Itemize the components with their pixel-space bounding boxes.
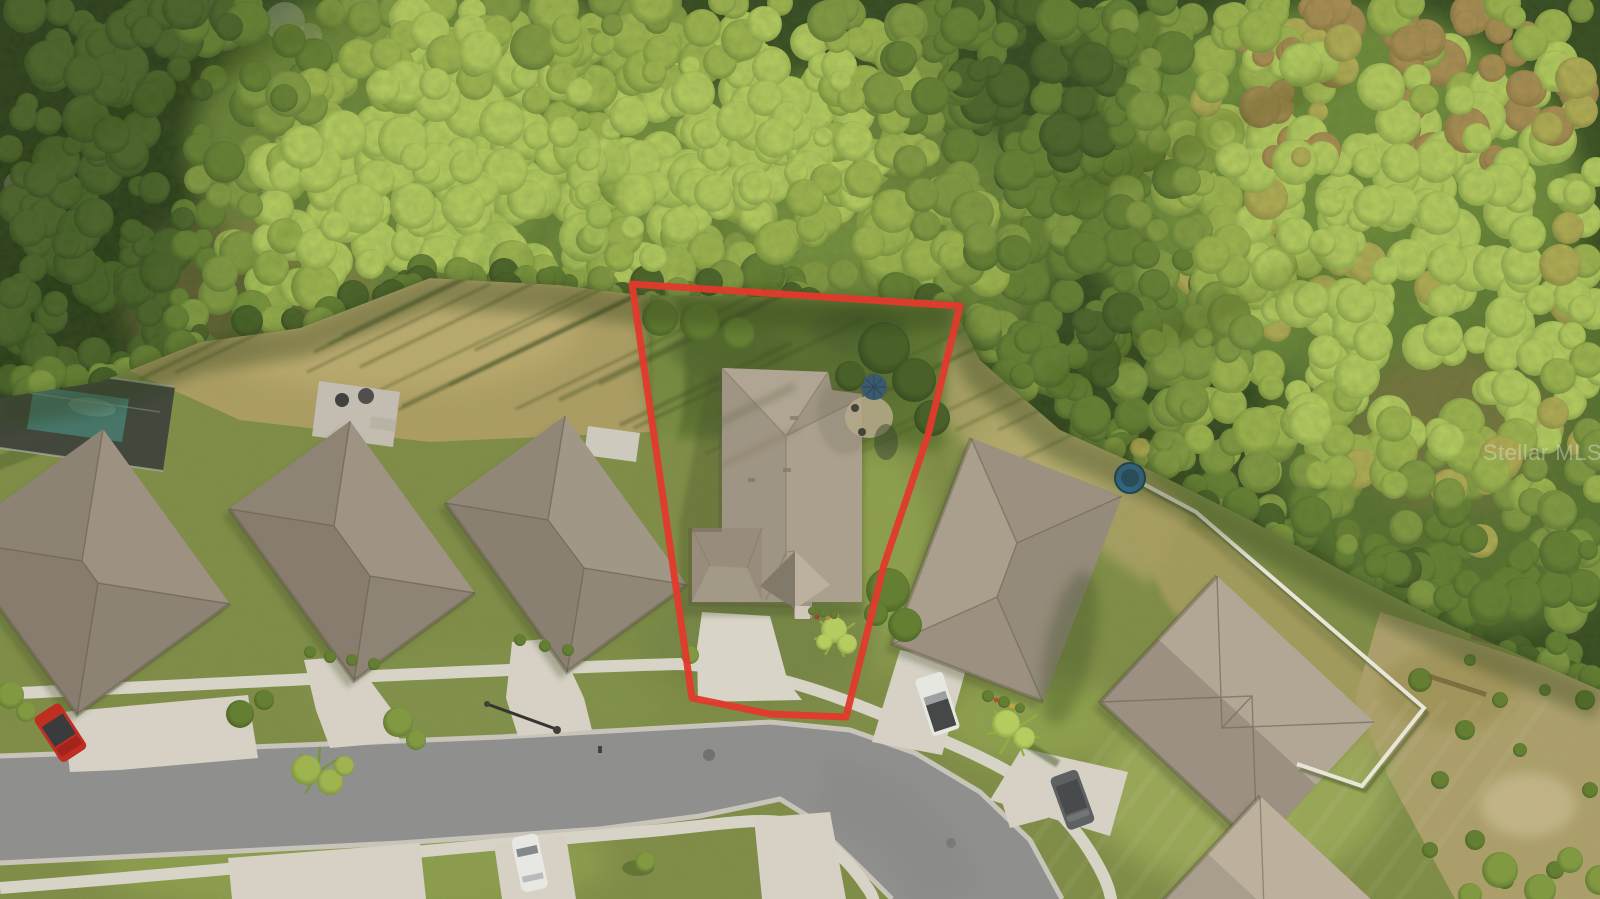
svg-text:Stellar MLS: Stellar MLS [1483, 440, 1600, 465]
